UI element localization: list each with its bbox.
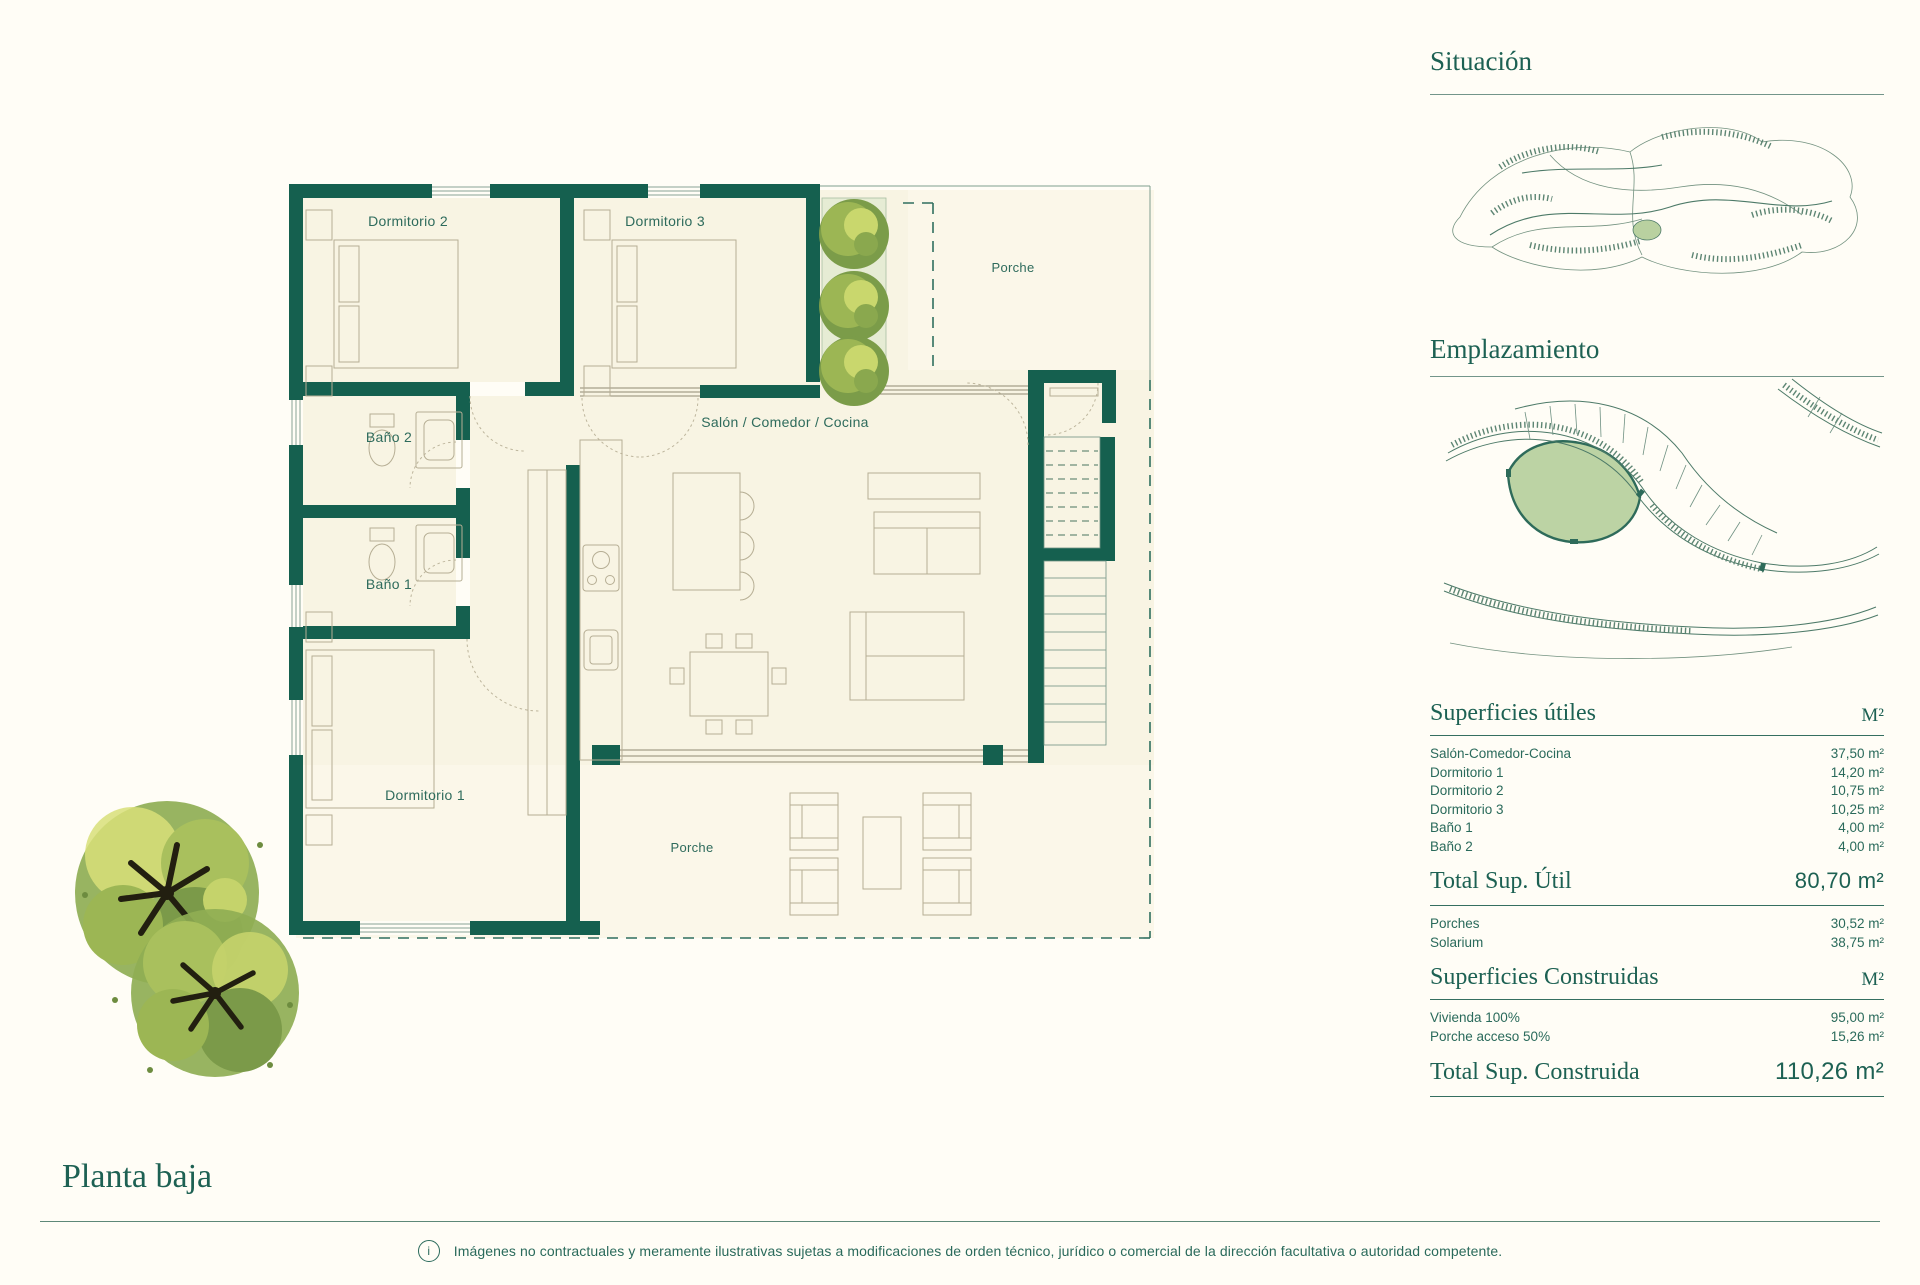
row-label: Dormitorio 1 <box>1430 764 1504 783</box>
room-label-dormitorio-3: Dormitorio 3 <box>625 213 705 229</box>
row-value: 37,50 m² <box>1831 745 1884 764</box>
row-label: Dormitorio 3 <box>1430 801 1504 820</box>
superficies-utiles-header: Superficies útiles M² <box>1430 700 1884 736</box>
unit-header: M² <box>1861 705 1884 727</box>
table-row: Dormitorio 3 10,25 m² <box>1430 801 1884 820</box>
table-row: Dormitorio 1 14,20 m² <box>1430 764 1884 783</box>
bush-icon <box>819 271 889 341</box>
table-row: Porche acceso 50% 15,26 m² <box>1430 1028 1884 1047</box>
room-label-porche-top: Porche <box>992 260 1035 275</box>
row-value: 10,75 m² <box>1831 782 1884 801</box>
footer-divider <box>40 1221 1880 1222</box>
bush-strip <box>819 198 889 406</box>
surface-tables: Superficies útiles M² Salón-Comedor-Coci… <box>1430 700 1884 1097</box>
row-value: 15,26 m² <box>1831 1028 1884 1047</box>
disclaimer-text: Imágenes no contractuales y meramente il… <box>454 1243 1502 1259</box>
situacion-map <box>1430 95 1884 307</box>
table-row: Baño 1 4,00 m² <box>1430 819 1884 838</box>
disclaimer-bar: i Imágenes no contractuales y meramente … <box>0 1240 1920 1262</box>
room-label-dormitorio-1: Dormitorio 1 <box>385 787 465 803</box>
total-construida-value: 110,26 m² <box>1775 1058 1884 1086</box>
table-row: Baño 2 4,00 m² <box>1430 838 1884 857</box>
tree-icon <box>131 909 299 1077</box>
row-label: Porches <box>1430 915 1480 934</box>
total-util-row: Total Sup. Útil 80,70 m² <box>1430 862 1884 906</box>
row-value: 95,00 m² <box>1831 1009 1884 1028</box>
bush-icon <box>819 336 889 406</box>
superficies-construidas-rows: Vivienda 100% 95,00 m² Porche acceso 50%… <box>1430 1000 1884 1052</box>
row-value: 14,20 m² <box>1831 764 1884 783</box>
superficies-construidas-title: Superficies Construidas <box>1430 964 1659 991</box>
row-value: 30,52 m² <box>1831 915 1884 934</box>
brochure-page: { "page": { "background": "#fffdf6", "wa… <box>0 0 1920 1285</box>
row-label: Dormitorio 2 <box>1430 782 1504 801</box>
floor-plan-drawing: Dormitorio 2 Dormitorio 3 Porche Salón /… <box>270 140 1190 970</box>
row-label: Baño 2 <box>1430 838 1473 857</box>
row-label: Porche acceso 50% <box>1430 1028 1550 1047</box>
room-label-porche-bottom: Porche <box>671 840 714 855</box>
bush-icon <box>819 199 889 269</box>
total-construida-label: Total Sup. Construida <box>1430 1059 1640 1086</box>
situacion-heading: Situación <box>1430 44 1884 95</box>
row-value: 10,25 m² <box>1831 801 1884 820</box>
room-label-bano-1: Baño 1 <box>366 576 412 592</box>
room-label-dormitorio-2: Dormitorio 2 <box>368 213 448 229</box>
table-row: Dormitorio 2 10,75 m² <box>1430 782 1884 801</box>
row-value: 4,00 m² <box>1838 838 1884 857</box>
room-label-salon: Salón / Comedor / Cocina <box>701 414 869 430</box>
situacion-highlight-plot <box>1633 220 1661 240</box>
room-label-bano-2: Baño 2 <box>366 429 412 445</box>
table-row: Solarium 38,75 m² <box>1430 934 1884 953</box>
total-construida-row: Total Sup. Construida 110,26 m² <box>1430 1052 1884 1097</box>
table-row: Salón-Comedor-Cocina 37,50 m² <box>1430 745 1884 764</box>
row-label: Vivienda 100% <box>1430 1009 1520 1028</box>
superficies-construidas-header: Superficies Construidas M² <box>1430 964 1884 1000</box>
emplazamiento-map <box>1430 377 1884 665</box>
tree-illustration <box>55 775 315 1085</box>
total-util-label: Total Sup. Útil <box>1430 868 1572 895</box>
emplazamiento-heading: Emplazamiento <box>1430 332 1884 377</box>
emplazamiento-plot <box>1508 441 1640 542</box>
table-row: Vivienda 100% 95,00 m² <box>1430 1009 1884 1028</box>
exteriores-rows: Porches 30,52 m² Solarium 38,75 m² <box>1430 906 1884 958</box>
page-title: Planta baja <box>62 1158 212 1196</box>
unit-header: M² <box>1861 969 1884 991</box>
superficies-utiles-title: Superficies útiles <box>1430 700 1596 727</box>
superficies-utiles-rows: Salón-Comedor-Cocina 37,50 m² Dormitorio… <box>1430 736 1884 862</box>
info-icon: i <box>418 1240 440 1262</box>
total-util-value: 80,70 m² <box>1795 868 1884 894</box>
row-label: Solarium <box>1430 934 1483 953</box>
row-value: 4,00 m² <box>1838 819 1884 838</box>
row-label: Baño 1 <box>1430 819 1473 838</box>
row-value: 38,75 m² <box>1831 934 1884 953</box>
row-label: Salón-Comedor-Cocina <box>1430 745 1571 764</box>
right-column: Situación Emplazamiento <box>1430 44 1884 1097</box>
table-row: Porches 30,52 m² <box>1430 915 1884 934</box>
